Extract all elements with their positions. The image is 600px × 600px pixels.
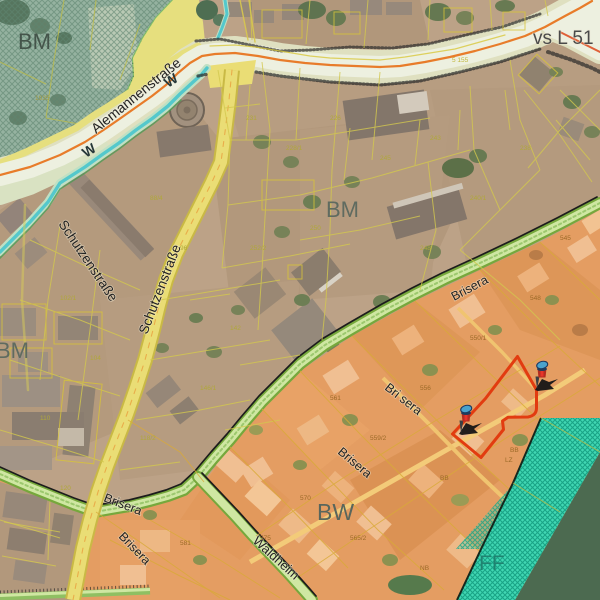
svg-text:565/2: 565/2 [350,535,367,542]
svg-text:238: 238 [520,145,531,152]
svg-text:FF: FF [479,552,505,575]
svg-text:88/4: 88/4 [150,195,163,202]
svg-text:548: 548 [530,295,541,302]
svg-text:556: 556 [420,385,431,392]
svg-text:102/1: 102/1 [60,295,77,302]
svg-text:5 155: 5 155 [452,57,469,64]
svg-text:NB: NB [420,565,429,572]
svg-text:BB: BB [440,475,449,482]
svg-text:248: 248 [420,245,431,252]
svg-text:245: 245 [380,155,391,162]
svg-text:570: 570 [300,495,311,502]
svg-text:575: 575 [260,535,271,542]
svg-text:1935: 1935 [35,95,50,102]
svg-text:243: 243 [430,135,441,142]
svg-text:BM: BM [18,29,51,54]
svg-text:250: 250 [310,225,321,232]
svg-text:104: 104 [90,355,101,362]
svg-text:BM: BM [326,197,359,222]
svg-text:550/1: 550/1 [470,335,487,342]
svg-text:BB: BB [510,447,519,454]
svg-text:146/1: 146/1 [200,385,217,392]
svg-text:231: 231 [246,115,257,122]
svg-text:142: 142 [230,325,241,332]
svg-text:581: 581 [180,540,191,547]
svg-text:110: 110 [40,415,51,422]
svg-text:118/2: 118/2 [140,435,156,442]
svg-text:120: 120 [60,485,71,492]
svg-text:559/2: 559/2 [370,435,387,442]
svg-text:252/2: 252/2 [250,245,267,252]
svg-text:545: 545 [560,235,571,242]
svg-text:BM: BM [0,338,29,363]
svg-text:240/1: 240/1 [470,195,487,202]
svg-text:96: 96 [180,245,188,252]
svg-text:LZ: LZ [505,457,513,464]
svg-text:226: 226 [330,115,341,122]
svg-text:228/1: 228/1 [286,145,303,152]
svg-text:BW: BW [317,499,354,525]
svg-text:vs L 51: vs L 51 [533,28,594,49]
svg-text:561: 561 [330,395,341,402]
